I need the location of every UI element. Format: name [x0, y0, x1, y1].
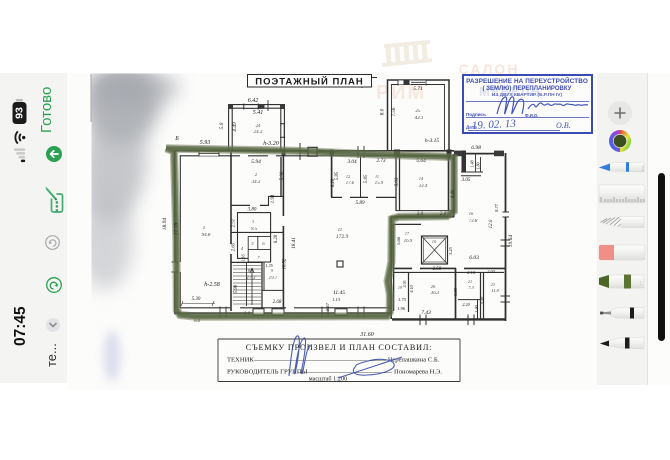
svg-text:16.9: 16.9 [404, 239, 413, 244]
svg-text:2.65: 2.65 [232, 242, 237, 251]
svg-text:5.30: 5.30 [192, 297, 201, 302]
svg-text:19.64: 19.64 [507, 235, 514, 248]
svg-text:24.3: 24.3 [254, 130, 263, 135]
svg-text:11.8: 11.8 [491, 288, 499, 293]
svg-text:25: 25 [416, 109, 422, 114]
svg-text:6.03: 6.03 [469, 255, 479, 261]
svg-text:5: 5 [251, 241, 254, 246]
svg-text:5.85: 5.85 [364, 174, 369, 183]
svg-text:4.49: 4.49 [231, 122, 238, 132]
svg-text:6.42: 6.42 [248, 97, 259, 104]
svg-text:10.52: 10.52 [283, 258, 288, 269]
svg-text:17.6: 17.6 [346, 181, 355, 186]
svg-text:12.0: 12.0 [489, 219, 494, 228]
svg-text:19.7: 19.7 [269, 276, 278, 281]
svg-text:11: 11 [338, 228, 343, 233]
svg-text:2.0: 2.0 [440, 212, 447, 217]
svg-text:1.90: 1.90 [474, 304, 479, 312]
svg-text:10: 10 [432, 239, 437, 244]
svg-text:17.78: 17.78 [174, 223, 180, 236]
svg-text:8.0: 8.0 [380, 108, 386, 115]
svg-text:Пономарева Н.Э.: Пономарева Н.Э. [394, 369, 442, 376]
svg-text:3.04: 3.04 [347, 158, 356, 165]
svg-text:5.41: 5.41 [253, 109, 264, 116]
svg-text:1.80: 1.80 [476, 161, 481, 169]
svg-text:h-3.15: h-3.15 [425, 138, 439, 144]
svg-text:1.16: 1.16 [241, 253, 246, 261]
svg-text:3.25: 3.25 [448, 246, 453, 255]
svg-text:ПОЭТАЖНЫЙ ПЛАН: ПОЭТАЖНЫЙ ПЛАН [255, 76, 363, 88]
svg-text:12: 12 [346, 174, 350, 179]
svg-text:20: 20 [431, 284, 436, 289]
svg-text:6: 6 [262, 241, 265, 246]
svg-text:5.89: 5.89 [355, 200, 364, 206]
svg-text:1.94: 1.94 [271, 194, 276, 203]
svg-text:9: 9 [271, 268, 274, 273]
svg-text:СЪЕМКУ ПРОИЗВЕЛ И ПЛАН СОСТАВИ: СЪЕМКУ ПРОИЗВЕЛ И ПЛАН СОСТАВИЛ: [246, 343, 433, 352]
svg-text:11: 11 [375, 174, 379, 179]
svg-text:33.4: 33.4 [419, 184, 428, 189]
svg-text:2.51: 2.51 [232, 219, 237, 227]
svg-text:2: 2 [255, 172, 258, 177]
svg-text:5.81: 5.81 [480, 296, 485, 304]
svg-text:16: 16 [469, 211, 474, 216]
svg-text:2.10: 2.10 [467, 270, 476, 275]
svg-text:1.96: 1.96 [397, 306, 406, 311]
svg-text:( ЗЕМЛЮ) ПЕРЕПЛАНИРОВКУ: ( ЗЕМЛЮ) ПЕРЕПЛАНИРОВКУ [483, 86, 572, 92]
svg-text:1.48: 1.48 [470, 159, 475, 167]
svg-text:5.90: 5.90 [234, 284, 239, 293]
svg-text:172.9: 172.9 [336, 234, 349, 240]
svg-text:6.28: 6.28 [274, 234, 279, 243]
svg-text:21: 21 [468, 279, 472, 284]
svg-text:73.8: 73.8 [469, 219, 478, 224]
svg-text:1.35: 1.35 [265, 263, 272, 268]
svg-text:2.03: 2.03 [487, 269, 496, 274]
svg-text:14: 14 [419, 176, 424, 181]
svg-text:h-2.58: h-2.58 [204, 282, 220, 288]
svg-text:0.57: 0.57 [325, 302, 330, 311]
svg-text:ТЕХНИК: ТЕХНИК [227, 357, 254, 364]
svg-text:3.05: 3.05 [462, 178, 471, 183]
svg-text:34.3: 34.3 [252, 180, 261, 185]
svg-text:18.94: 18.94 [161, 218, 168, 231]
svg-text:9.5: 9.5 [251, 227, 258, 232]
svg-text:3.80: 3.80 [248, 208, 257, 213]
svg-text:6.20: 6.20 [331, 178, 336, 187]
svg-text:Черепашкина С.Б.: Черепашкина С.Б. [388, 357, 440, 364]
svg-text:5.93: 5.93 [395, 177, 400, 186]
svg-text:4.10: 4.10 [409, 284, 414, 292]
svg-text:19. 02. 13: 19. 02. 13 [472, 118, 517, 132]
svg-text:7.43: 7.43 [421, 309, 431, 316]
svg-text:24: 24 [256, 124, 261, 129]
svg-text:18.41: 18.41 [290, 237, 297, 249]
svg-text:5.88: 5.88 [453, 287, 458, 296]
svg-text:11.45: 11.45 [333, 289, 345, 296]
svg-text:РАЗРЕШЕНИЕ НА ПЕРЕУСТРОЙСТВО: РАЗРЕШЕНИЕ НА ПЕРЕУСТРОЙСТВО [466, 76, 588, 85]
svg-text:5.66: 5.66 [396, 236, 401, 245]
svg-text:7.3: 7.3 [468, 285, 474, 290]
svg-text:3.95: 3.95 [402, 280, 407, 287]
svg-text:3.0: 3.0 [417, 212, 424, 217]
svg-text:94.8: 94.8 [202, 233, 211, 238]
svg-text:2.73: 2.73 [376, 158, 385, 164]
svg-text:23: 23 [491, 282, 495, 287]
svg-text:ИЗ ДВУХ КВАРТИР (Б.Р.ПН IV): ИЗ ДВУХ КВАРТИР (Б.Р.ПН IV) [492, 92, 563, 98]
svg-text:1.13: 1.13 [332, 297, 341, 302]
svg-text:1: 1 [203, 226, 206, 231]
svg-text:31.60: 31.60 [359, 332, 374, 338]
svg-text:5.71: 5.71 [413, 86, 423, 92]
svg-text:2.68: 2.68 [273, 300, 282, 305]
svg-text:2.20: 2.20 [462, 302, 470, 307]
svg-text:4.40: 4.40 [451, 189, 456, 198]
svg-text:5.90: 5.90 [280, 171, 285, 180]
svg-text:3: 3 [252, 219, 254, 224]
svg-text:17: 17 [405, 231, 410, 236]
svg-text:43.1: 43.1 [415, 116, 424, 121]
svg-text:h-3.20: h-3.20 [263, 141, 279, 147]
svg-text:0.77: 0.77 [494, 203, 499, 212]
svg-text:Подпись: Подпись [466, 112, 486, 117]
svg-text:2.50: 2.50 [433, 267, 442, 272]
svg-text:7: 7 [257, 255, 260, 260]
svg-text:7.56: 7.56 [391, 107, 397, 116]
svg-text:36.3: 36.3 [431, 291, 440, 296]
svg-text:5.94: 5.94 [251, 158, 261, 165]
svg-text:17.3: 17.3 [247, 276, 256, 281]
svg-text:О.В.: О.В. [556, 121, 571, 130]
svg-text:1.75: 1.75 [398, 297, 407, 302]
svg-text:15.9: 15.9 [375, 181, 384, 186]
svg-text:5.0: 5.0 [219, 122, 225, 129]
svg-text:4: 4 [241, 246, 244, 251]
svg-text:Ф.И.О.: Ф.И.О. [525, 113, 538, 118]
svg-text:Б: Б [174, 136, 179, 142]
svg-text:6.98: 6.98 [471, 145, 481, 151]
